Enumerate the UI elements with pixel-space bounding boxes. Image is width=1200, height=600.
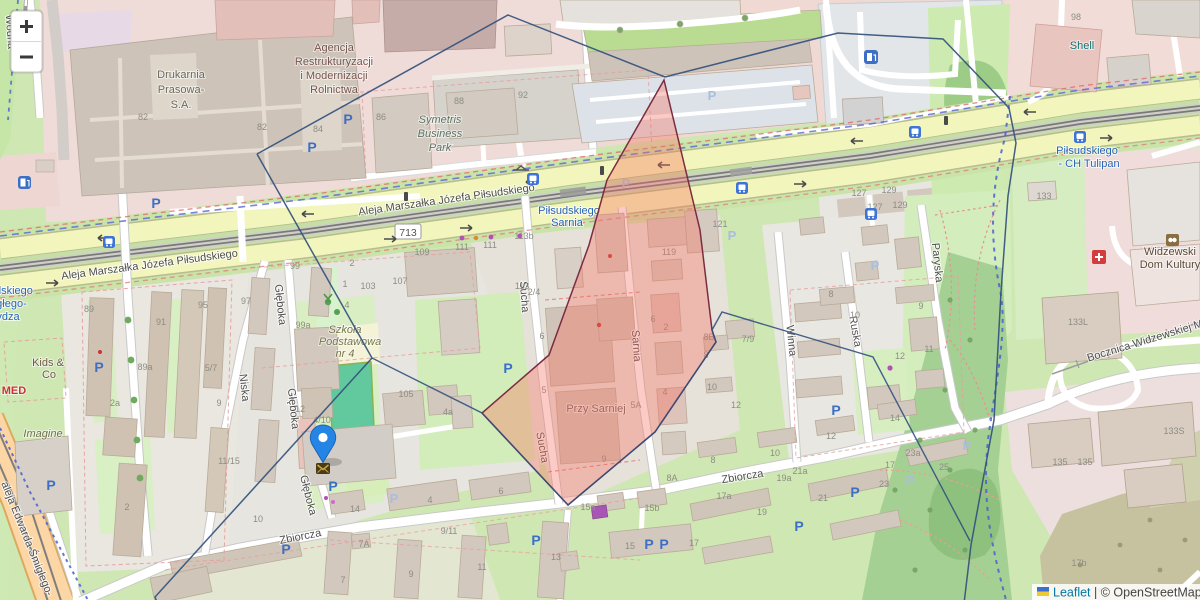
svg-text:713: 713 bbox=[399, 227, 417, 239]
svg-text:Sarnia: Sarnia bbox=[551, 217, 584, 229]
svg-text:21: 21 bbox=[818, 493, 828, 503]
svg-text:P: P bbox=[94, 359, 103, 375]
svg-text:9: 9 bbox=[918, 301, 923, 311]
svg-text:15: 15 bbox=[625, 541, 635, 551]
svg-text:15b: 15b bbox=[644, 503, 659, 513]
svg-text:12: 12 bbox=[731, 400, 741, 410]
svg-text:7: 7 bbox=[340, 575, 345, 585]
svg-text:Dom Kultury: Dom Kultury bbox=[1140, 259, 1200, 271]
svg-text:12: 12 bbox=[826, 431, 836, 441]
svg-text:P: P bbox=[503, 360, 512, 376]
svg-text:2: 2 bbox=[124, 502, 129, 512]
svg-text:17b: 17b bbox=[1071, 558, 1086, 568]
svg-text:88: 88 bbox=[454, 96, 464, 106]
svg-text:P: P bbox=[831, 402, 840, 418]
svg-text:Śmigłego-: Śmigłego- bbox=[0, 297, 27, 310]
svg-text:P: P bbox=[644, 536, 653, 552]
svg-text:111: 111 bbox=[455, 242, 469, 252]
svg-text:i Modernizacji: i Modernizacji bbox=[300, 70, 367, 82]
svg-text:P: P bbox=[708, 88, 717, 103]
svg-text:8: 8 bbox=[710, 455, 715, 465]
svg-text:Restrukturyzacji: Restrukturyzacji bbox=[295, 56, 373, 68]
svg-text:4: 4 bbox=[427, 495, 432, 505]
svg-text:12: 12 bbox=[295, 404, 305, 414]
svg-text:11: 11 bbox=[477, 562, 486, 572]
svg-text:10: 10 bbox=[850, 310, 860, 320]
svg-text:10: 10 bbox=[770, 448, 780, 458]
svg-text:Co: Co bbox=[42, 369, 56, 381]
svg-text:133L: 133L bbox=[1068, 317, 1088, 327]
svg-text:14: 14 bbox=[350, 504, 360, 514]
svg-text:Prasowa-: Prasowa- bbox=[158, 84, 205, 96]
svg-text:Imagine: Imagine bbox=[23, 428, 62, 440]
svg-text:99: 99 bbox=[290, 261, 300, 271]
svg-text:Shell: Shell bbox=[1070, 40, 1094, 52]
svg-text:10: 10 bbox=[707, 382, 717, 392]
svg-text:97: 97 bbox=[241, 296, 251, 306]
svg-text:MED: MED bbox=[2, 385, 27, 397]
svg-text:8A: 8A bbox=[666, 473, 677, 483]
svg-text:23a: 23a bbox=[905, 448, 920, 458]
svg-text:Rolnictwa: Rolnictwa bbox=[310, 84, 359, 96]
svg-text:Piłsudskiego: Piłsudskiego bbox=[0, 285, 33, 297]
svg-text:21a: 21a bbox=[792, 466, 807, 476]
svg-text:23: 23 bbox=[879, 479, 889, 489]
svg-text:12: 12 bbox=[895, 351, 905, 361]
svg-text:P: P bbox=[307, 139, 316, 155]
svg-text:7/9: 7/9 bbox=[742, 334, 755, 344]
svg-text:129: 129 bbox=[881, 185, 896, 195]
svg-text:99a: 99a bbox=[295, 320, 310, 330]
svg-text:107: 107 bbox=[392, 276, 407, 286]
svg-text:89a: 89a bbox=[137, 362, 152, 372]
svg-text:nr 4: nr 4 bbox=[336, 348, 355, 360]
svg-text:19: 19 bbox=[757, 507, 767, 517]
svg-text:Widzewski: Widzewski bbox=[1144, 246, 1196, 258]
svg-text:135: 135 bbox=[1077, 457, 1092, 467]
svg-text:17: 17 bbox=[689, 538, 699, 548]
svg-text:8: 8 bbox=[828, 289, 833, 299]
svg-text:9/11: 9/11 bbox=[441, 526, 458, 536]
svg-text:P: P bbox=[531, 532, 540, 548]
svg-text:P: P bbox=[728, 228, 737, 243]
svg-text:133: 133 bbox=[1036, 191, 1051, 201]
svg-text:127: 127 bbox=[851, 188, 866, 198]
svg-text:Podstawowa: Podstawowa bbox=[319, 336, 381, 348]
svg-text:Piłsudskiego: Piłsudskiego bbox=[1056, 145, 1118, 157]
svg-text:P: P bbox=[794, 518, 803, 534]
svg-text:82: 82 bbox=[257, 122, 267, 132]
svg-text:S.A.: S.A. bbox=[171, 99, 192, 111]
svg-text:5/7: 5/7 bbox=[205, 363, 218, 373]
svg-text:4a: 4a bbox=[443, 407, 453, 417]
svg-text:113b: 113b bbox=[514, 231, 533, 241]
svg-text:P: P bbox=[328, 478, 337, 494]
svg-text:82: 82 bbox=[138, 112, 148, 122]
svg-text:15a: 15a bbox=[580, 502, 595, 512]
svg-text:Business: Business bbox=[418, 128, 463, 140]
svg-text:Rydza: Rydza bbox=[0, 311, 20, 323]
svg-text:105: 105 bbox=[398, 389, 413, 399]
svg-text:P: P bbox=[281, 541, 290, 557]
svg-text:- CH Tulipan: - CH Tulipan bbox=[1058, 158, 1119, 170]
svg-text:19a: 19a bbox=[776, 473, 791, 483]
svg-text:14: 14 bbox=[890, 413, 900, 423]
svg-text:103: 103 bbox=[360, 281, 375, 291]
svg-text:Symetris: Symetris bbox=[419, 114, 462, 126]
svg-text:Drukarnia: Drukarnia bbox=[157, 69, 206, 81]
svg-text:6: 6 bbox=[498, 486, 503, 496]
svg-text:4: 4 bbox=[344, 300, 349, 310]
svg-text:91: 91 bbox=[156, 317, 166, 327]
svg-text:95: 95 bbox=[198, 300, 208, 310]
svg-text:6: 6 bbox=[539, 331, 544, 341]
svg-text:17: 17 bbox=[885, 460, 895, 470]
svg-text:10: 10 bbox=[253, 514, 263, 524]
svg-text:13: 13 bbox=[551, 552, 561, 562]
svg-text:98: 98 bbox=[1071, 12, 1081, 22]
svg-text:2: 2 bbox=[349, 258, 354, 268]
svg-text:86: 86 bbox=[376, 112, 386, 122]
svg-text:111: 111 bbox=[483, 240, 497, 250]
svg-text:129: 129 bbox=[892, 200, 907, 210]
svg-text:92: 92 bbox=[518, 90, 528, 100]
svg-text:P: P bbox=[963, 438, 972, 453]
svg-text:P: P bbox=[906, 473, 915, 488]
svg-text:Kids &: Kids & bbox=[32, 357, 64, 369]
svg-text:1: 1 bbox=[342, 279, 347, 289]
svg-text:P: P bbox=[850, 484, 859, 500]
svg-text:Leaflet: Leaflet bbox=[1053, 586, 1091, 600]
svg-text:P: P bbox=[659, 536, 668, 552]
svg-text:84: 84 bbox=[313, 124, 323, 134]
svg-text:17a: 17a bbox=[716, 491, 731, 501]
svg-text:121: 121 bbox=[712, 219, 727, 229]
svg-text:11/15: 11/15 bbox=[218, 456, 240, 466]
svg-text:109: 109 bbox=[414, 247, 429, 257]
svg-text:P: P bbox=[151, 195, 160, 211]
svg-text:P: P bbox=[871, 258, 880, 273]
svg-text:7A: 7A bbox=[358, 539, 369, 549]
svg-text:135: 135 bbox=[1052, 457, 1067, 467]
svg-text:P: P bbox=[343, 111, 352, 127]
svg-text:25: 25 bbox=[939, 462, 949, 472]
svg-text:89: 89 bbox=[84, 304, 94, 314]
svg-text:9: 9 bbox=[216, 398, 221, 408]
svg-text:2/4: 2/4 bbox=[528, 287, 541, 297]
svg-text:133S: 133S bbox=[1163, 426, 1184, 436]
svg-text:Agencja: Agencja bbox=[314, 42, 355, 54]
svg-text:9: 9 bbox=[408, 569, 413, 579]
svg-text:| © OpenStreetMap: | © OpenStreetMap bbox=[1094, 586, 1200, 600]
svg-text:Piłsudskiego: Piłsudskiego bbox=[538, 205, 600, 217]
svg-text:11: 11 bbox=[924, 344, 933, 354]
svg-text:P: P bbox=[390, 491, 399, 506]
svg-text:2a: 2a bbox=[110, 398, 120, 408]
svg-text:P: P bbox=[46, 477, 55, 493]
svg-text:Park: Park bbox=[429, 142, 452, 154]
